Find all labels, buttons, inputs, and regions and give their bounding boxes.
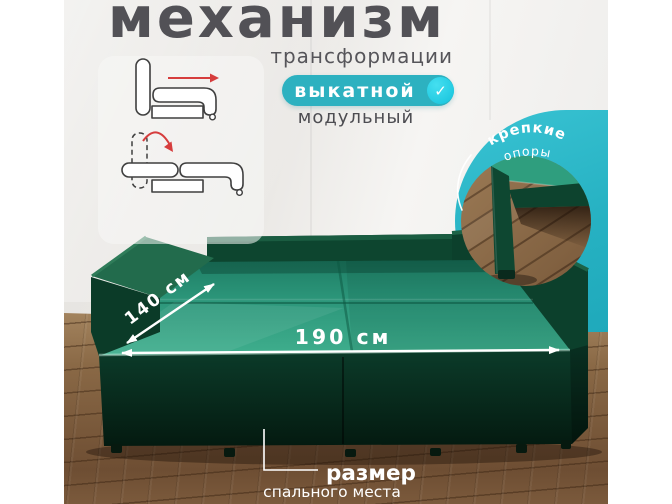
- check-icon: ✓: [427, 77, 454, 104]
- slide-arrow-icon: [168, 74, 219, 83]
- mechanism-type-badge: выкатной ✓: [282, 75, 454, 106]
- badge-label: выкатной: [294, 80, 441, 102]
- headline-subtitle: трансформации: [253, 44, 453, 68]
- product-card: крепкие опоры 140 см 190 см размер спаль…: [0, 0, 672, 504]
- depth-label: 140 см: [121, 267, 195, 330]
- caption-connector-line: [264, 429, 318, 470]
- secondary-option-label: модульный: [256, 107, 456, 128]
- headline-title: механизм: [87, 0, 467, 47]
- width-arrow: [122, 350, 559, 353]
- fold-over-pictogram: [122, 133, 243, 195]
- slide-out-pictogram: [136, 59, 216, 120]
- transformation-pictograms: [98, 56, 264, 244]
- caption-subtitle: спального места: [263, 483, 401, 501]
- transformation-diagram: [98, 56, 264, 244]
- width-label: 190 см: [295, 325, 392, 349]
- room-scene: крепкие опоры 140 см 190 см размер спаль…: [64, 0, 608, 504]
